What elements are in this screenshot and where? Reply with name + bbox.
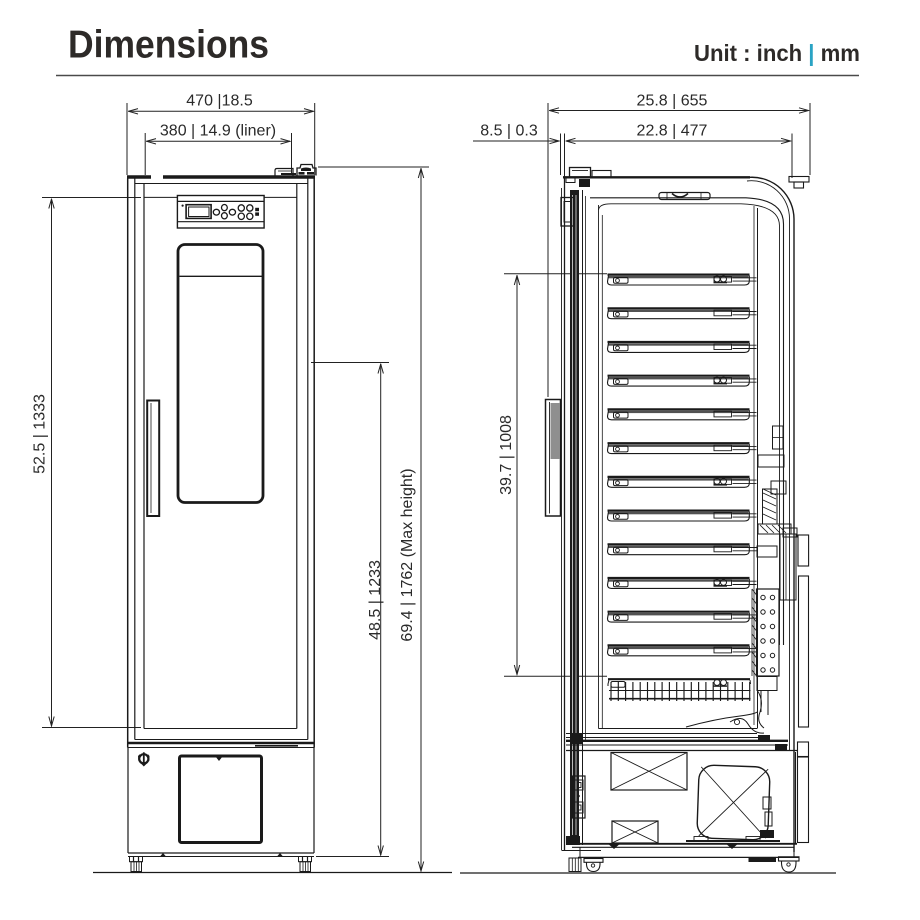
svg-text:52.5 | 1333: 52.5 | 1333 — [32, 394, 49, 474]
svg-text:380 | 14.9 (liner): 380 | 14.9 (liner) — [160, 123, 276, 140]
svg-text:69.4 | 1762 (Max height): 69.4 | 1762 (Max height) — [399, 468, 416, 641]
svg-text:470 |18.5: 470 |18.5 — [186, 93, 253, 110]
svg-text:22.8 | 477: 22.8 | 477 — [637, 123, 708, 140]
svg-text:Dimensions: Dimensions — [68, 24, 269, 67]
svg-text:25.8 | 655: 25.8 | 655 — [637, 93, 708, 110]
svg-text:Unit : inch | mm: Unit : inch | mm — [694, 40, 860, 66]
svg-text:39.7 | 1008: 39.7 | 1008 — [498, 415, 515, 495]
svg-text:48.5 | 1233: 48.5 | 1233 — [367, 560, 384, 640]
svg-text:8.5 | 0.3: 8.5 | 0.3 — [480, 123, 538, 140]
